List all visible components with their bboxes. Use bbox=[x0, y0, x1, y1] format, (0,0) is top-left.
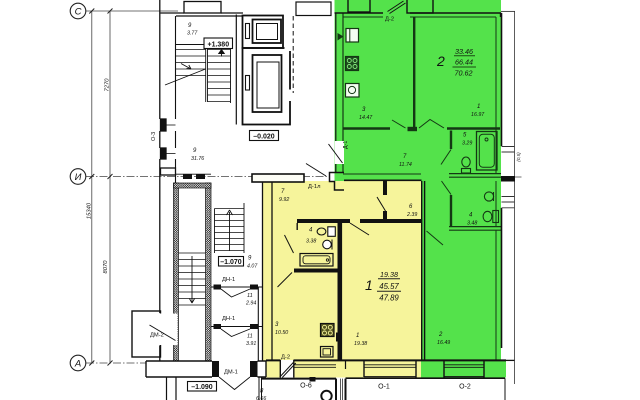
svg-text:–1.090: –1.090 bbox=[191, 384, 213, 391]
svg-text:11: 11 bbox=[247, 334, 253, 340]
svg-text:31.76: 31.76 bbox=[191, 156, 204, 162]
svg-text:19.38: 19.38 bbox=[354, 341, 367, 347]
svg-text:2.94: 2.94 bbox=[245, 301, 256, 307]
svg-text:11: 11 bbox=[247, 293, 253, 299]
svg-text:ДН-1: ДН-1 bbox=[222, 277, 235, 283]
svg-text:2: 2 bbox=[436, 53, 445, 69]
svg-text:6.66: 6.66 bbox=[256, 396, 266, 400]
svg-text:Д-1л: Д-1л bbox=[308, 184, 320, 190]
svg-text:И: И bbox=[75, 172, 82, 183]
svg-text:3.29: 3.29 bbox=[462, 141, 472, 147]
svg-text:66.44: 66.44 bbox=[455, 58, 473, 67]
svg-text:А: А bbox=[74, 359, 81, 370]
svg-text:16.49: 16.49 bbox=[437, 340, 450, 346]
svg-text:3.77: 3.77 bbox=[187, 31, 198, 37]
svg-text:С: С bbox=[75, 7, 82, 18]
svg-text:3.91: 3.91 bbox=[246, 341, 256, 347]
svg-text:1: 1 bbox=[356, 333, 359, 339]
svg-text:33.46: 33.46 bbox=[455, 47, 473, 56]
svg-text:10.50: 10.50 bbox=[275, 330, 288, 336]
svg-text:4.07: 4.07 bbox=[247, 264, 258, 270]
svg-text:16.97: 16.97 bbox=[471, 112, 485, 118]
svg-text:О-2: О-2 bbox=[459, 384, 471, 391]
svg-text:70.62: 70.62 bbox=[455, 69, 473, 78]
svg-text:ДМ-2: ДМ-2 bbox=[150, 333, 164, 339]
svg-text:45.57: 45.57 bbox=[379, 282, 399, 291]
svg-text:19.38: 19.38 bbox=[380, 270, 398, 279]
svg-text:+1.380: +1.380 bbox=[207, 41, 229, 48]
svg-text:ДМ-1: ДМ-1 bbox=[224, 370, 238, 376]
svg-text:1: 1 bbox=[477, 104, 480, 110]
svg-text:11.74: 11.74 bbox=[399, 162, 412, 168]
svg-text:Д-1: Д-1 bbox=[343, 141, 349, 149]
svg-text:9.92: 9.92 bbox=[279, 197, 289, 203]
svg-text:–1.070: –1.070 bbox=[220, 259, 242, 266]
svg-text:3.38: 3.38 bbox=[306, 239, 316, 245]
svg-text:2: 2 bbox=[438, 332, 443, 338]
svg-text:Д-2: Д-2 bbox=[385, 17, 394, 23]
svg-text:О-6: О-6 bbox=[300, 383, 312, 390]
svg-text:1: 1 bbox=[365, 277, 373, 293]
svg-text:15340: 15340 bbox=[86, 202, 92, 219]
svg-text:О-3: О-3 bbox=[151, 132, 157, 141]
svg-text:(0,5): (0,5) bbox=[516, 152, 521, 162]
svg-text:7270: 7270 bbox=[105, 78, 111, 92]
svg-text:2.39: 2.39 bbox=[406, 212, 417, 218]
svg-text:8070: 8070 bbox=[103, 260, 109, 274]
svg-text:14.47: 14.47 bbox=[359, 115, 373, 121]
svg-text:3.48: 3.48 bbox=[467, 221, 477, 227]
svg-text:–0.020: –0.020 bbox=[253, 133, 275, 140]
svg-text:О-1: О-1 bbox=[378, 384, 390, 391]
svg-text:Д-2: Д-2 bbox=[281, 355, 290, 361]
svg-text:ДН-1: ДН-1 bbox=[222, 316, 235, 322]
svg-text:47.89: 47.89 bbox=[379, 294, 399, 303]
